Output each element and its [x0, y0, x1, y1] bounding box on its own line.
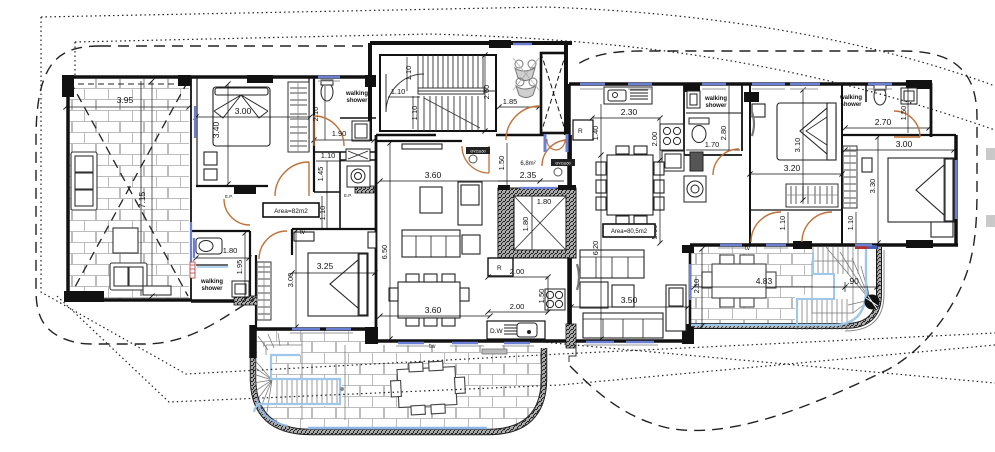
svg-text:shower: shower [346, 98, 368, 104]
svg-text:ΘΥΩΔ60: ΘΥΩΔ60 [470, 149, 486, 154]
svg-text:6,8m²: 6,8m² [520, 161, 535, 167]
svg-text:2.30: 2.30 [621, 107, 638, 117]
svg-text:1.40: 1.40 [591, 126, 600, 141]
svg-text:3.30: 3.30 [868, 179, 877, 194]
svg-text:ΘΥΩΔ60: ΘΥΩΔ60 [555, 161, 571, 166]
svg-text:1.45: 1.45 [316, 167, 325, 182]
svg-text:1.95: 1.95 [235, 260, 244, 275]
svg-text:6.20: 6.20 [591, 241, 600, 256]
svg-text:R: R [578, 128, 583, 135]
svg-text:6.50: 6.50 [380, 245, 389, 260]
svg-text:Area=80,5m2: Area=80,5m2 [611, 229, 648, 235]
svg-text:2.00: 2.00 [510, 267, 525, 276]
svg-text:2.80: 2.80 [719, 126, 728, 141]
svg-text:1.85: 1.85 [503, 97, 518, 106]
svg-text:3.60: 3.60 [425, 170, 442, 180]
svg-text:1.10: 1.10 [778, 216, 787, 231]
svg-text:1.80: 1.80 [521, 217, 530, 232]
svg-text:1.10: 1.10 [846, 216, 855, 231]
svg-text:2.10: 2.10 [692, 279, 701, 294]
svg-text:3.50: 3.50 [621, 295, 638, 305]
svg-text:Area=82m2: Area=82m2 [274, 208, 308, 215]
svg-text:1.10: 1.10 [391, 87, 406, 96]
svg-text:3.00: 3.00 [235, 106, 252, 116]
svg-text:1.80: 1.80 [537, 197, 552, 206]
svg-text:3.60: 3.60 [425, 305, 442, 315]
svg-text:1.70: 1.70 [705, 140, 720, 149]
svg-text:walking: walking [839, 95, 862, 101]
svg-text:2.60: 2.60 [482, 85, 491, 100]
svg-text:shower: shower [705, 103, 727, 109]
svg-text:D.W: D.W [490, 328, 504, 335]
svg-text:walking: walking [200, 279, 223, 285]
svg-text:E.P.: E.P. [344, 193, 352, 198]
svg-text:3.10: 3.10 [793, 138, 802, 153]
svg-text:1.50: 1.50 [537, 289, 546, 304]
svg-text:1.80: 1.80 [223, 246, 238, 255]
svg-text:1.50: 1.50 [497, 156, 506, 171]
svg-text:2.00: 2.00 [510, 302, 525, 311]
svg-text:R: R [497, 265, 502, 272]
svg-text:.90: .90 [847, 276, 859, 286]
svg-text:shower: shower [201, 286, 223, 292]
svg-text:E.P.: E.P. [225, 194, 233, 199]
svg-text:2.10: 2.10 [311, 107, 320, 122]
svg-text:2.35: 2.35 [520, 170, 537, 180]
svg-text:tv: tv [745, 245, 751, 252]
svg-text:1.10: 1.10 [321, 151, 336, 160]
svg-text:tv: tv [300, 229, 306, 236]
svg-text:4.83: 4.83 [756, 276, 773, 286]
svg-text:1.50: 1.50 [899, 106, 908, 121]
svg-text:3.00: 3.00 [896, 139, 913, 149]
svg-text:1.10: 1.10 [404, 66, 413, 81]
svg-text:walking: walking [704, 96, 727, 102]
svg-text:walking: walking [345, 91, 368, 97]
svg-text:3.25: 3.25 [317, 261, 334, 271]
svg-text:2.00: 2.00 [650, 132, 659, 147]
svg-text:3.40: 3.40 [211, 121, 221, 138]
svg-text:3.95: 3.95 [117, 95, 134, 105]
svg-text:1.90: 1.90 [332, 129, 347, 138]
svg-text:7.15: 7.15 [137, 191, 147, 208]
svg-text:1.10: 1.10 [410, 106, 419, 121]
svg-text:2.70: 2.70 [875, 117, 892, 127]
svg-text:3.00: 3.00 [286, 273, 295, 288]
svg-text:shower: shower [840, 102, 862, 108]
svg-text:3.20: 3.20 [784, 163, 801, 173]
